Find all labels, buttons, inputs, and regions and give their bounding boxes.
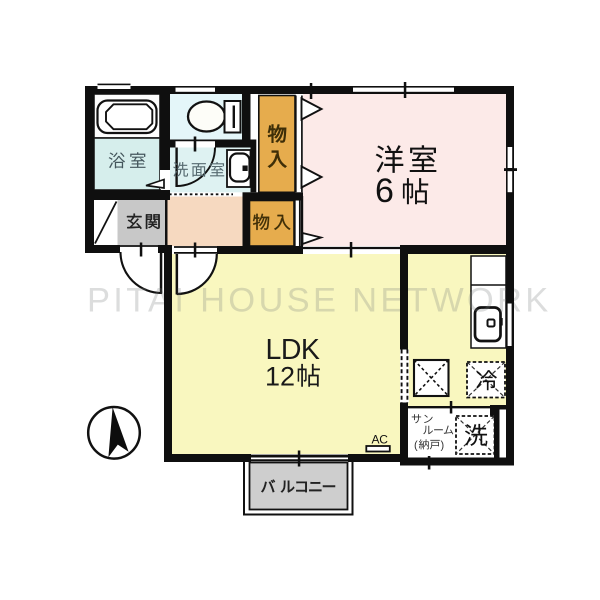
svg-text:(: (: [414, 440, 418, 452]
svg-text:12: 12: [265, 362, 295, 392]
svg-text:PITAI HOUSE NETWORK: PITAI HOUSE NETWORK: [87, 282, 552, 320]
svg-text:): ): [441, 440, 445, 452]
svg-text:6: 6: [375, 172, 394, 210]
svg-text:AC: AC: [372, 432, 389, 446]
